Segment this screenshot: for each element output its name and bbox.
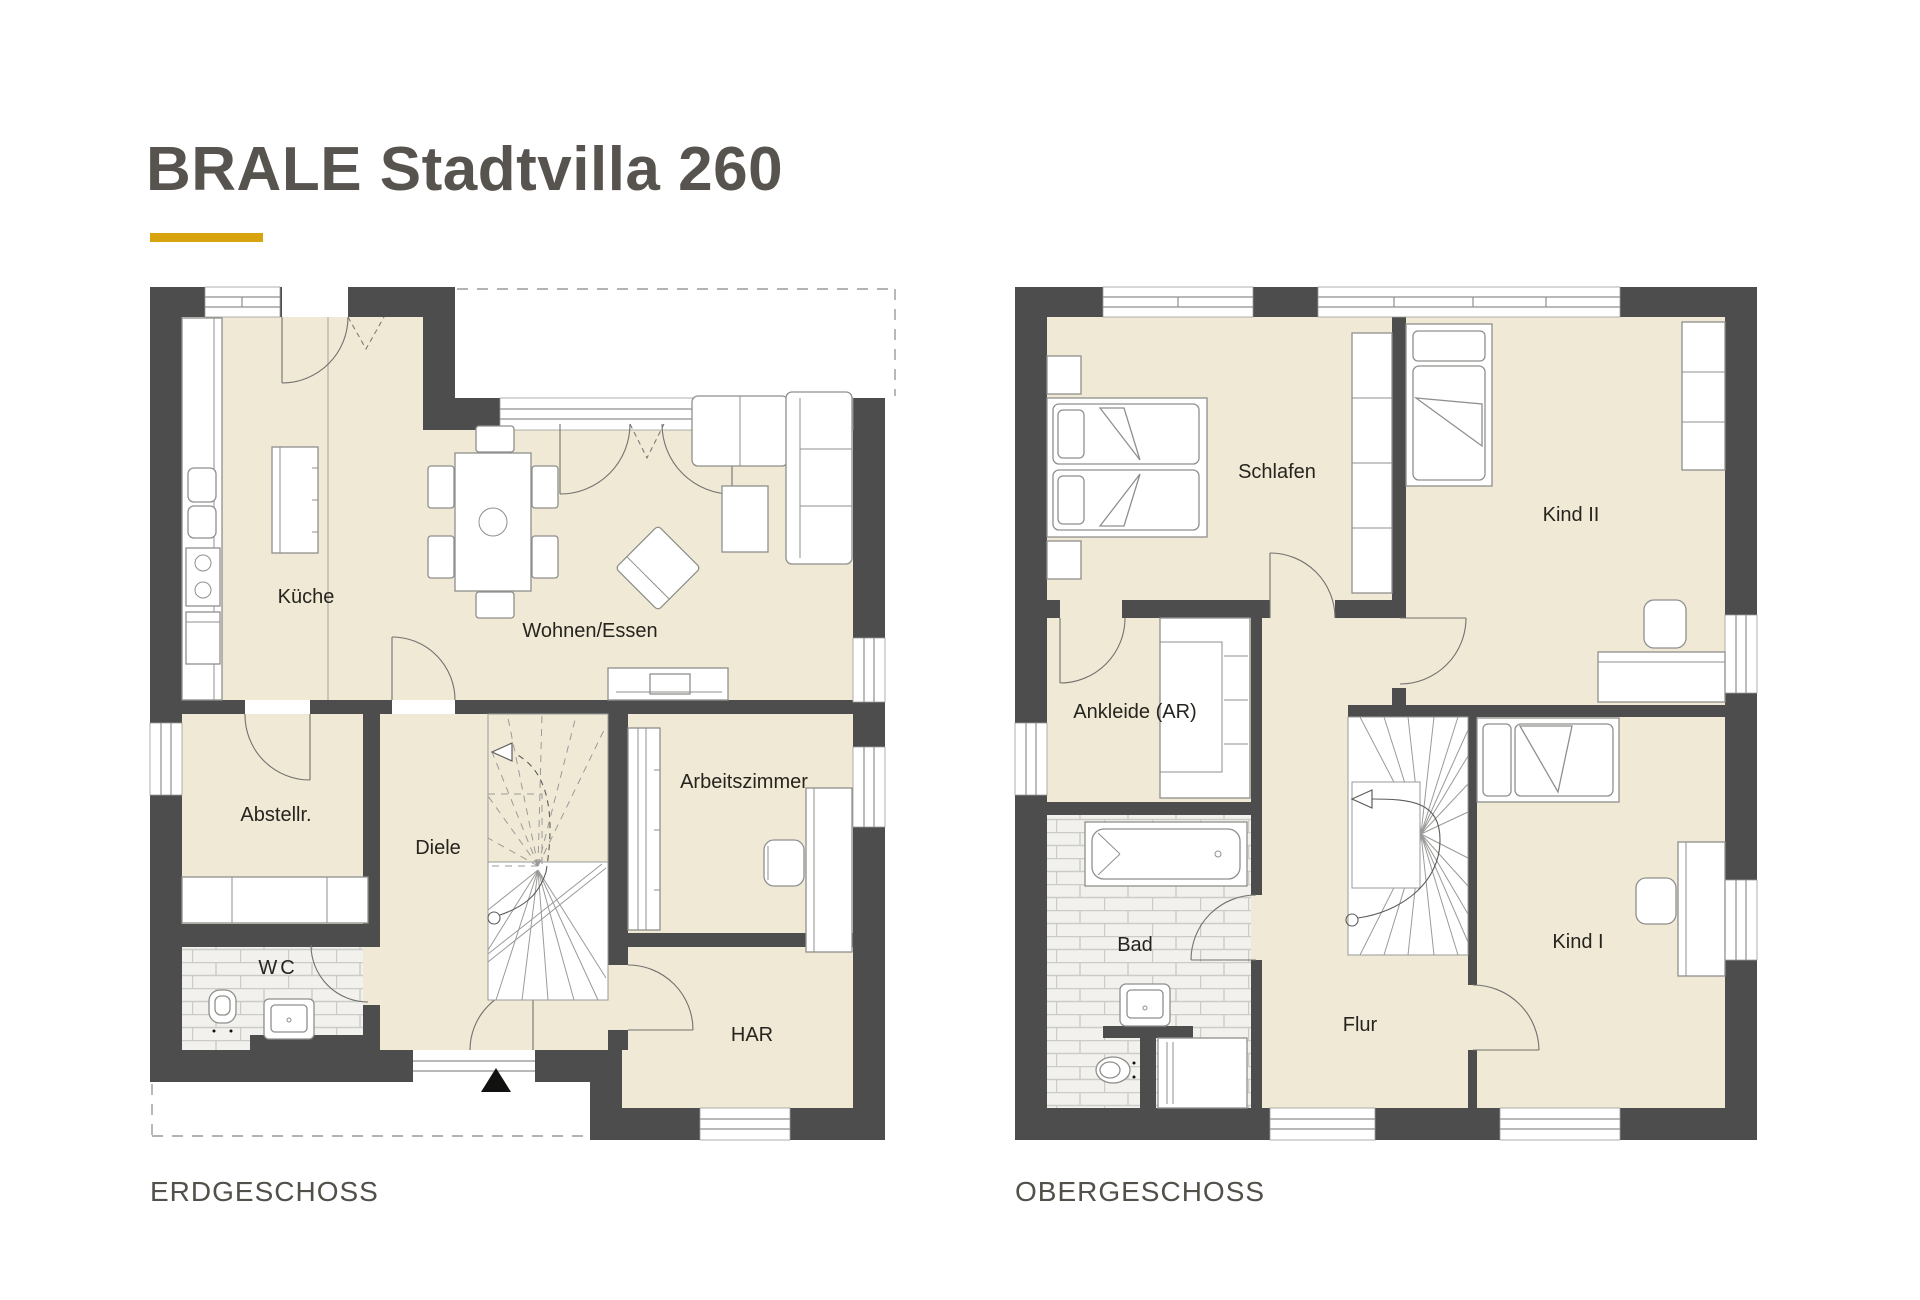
room-label-schlafen: Schlafen — [1238, 461, 1316, 483]
floorplans-canvas: Küche Wohnen/Essen Abstellr. Diele WC Ar… — [0, 0, 1920, 1300]
page: BRALE Stadtvilla 260 — [0, 0, 1920, 1300]
nightstand-2 — [1047, 541, 1081, 579]
porch-outline — [152, 1084, 588, 1136]
wardrobe-kind2 — [1682, 322, 1725, 470]
room-label-wc: WC — [258, 957, 297, 979]
office-chair — [764, 840, 804, 886]
kitchen-island — [272, 447, 318, 553]
coffee-table — [722, 486, 768, 552]
wc-sink — [264, 999, 314, 1039]
desk-kind2 — [1598, 652, 1725, 702]
room-label-abstellraum: Abstellr. — [240, 804, 311, 826]
bath-sink — [1120, 984, 1170, 1026]
room-label-wohnen-essen: Wohnen/Essen — [522, 620, 657, 642]
floorplan-obergeschoss: Schlafen Kind II Ankleide (AR) Bad Flur … — [1015, 287, 1757, 1140]
room-label-kind1: Kind I — [1552, 931, 1603, 953]
chair-kind2 — [1644, 600, 1686, 648]
room-label-kind2: Kind II — [1543, 504, 1600, 526]
room-label-bad: Bad — [1117, 934, 1153, 956]
double-bed — [1047, 398, 1207, 537]
desk-kind1 — [1678, 842, 1725, 976]
room-label-diele: Diele — [415, 837, 461, 859]
room-label-arbeitszimmer: Arbeitszimmer — [680, 771, 808, 793]
floor-label-obergeschoss: OBERGESCHOSS — [1015, 1176, 1265, 1208]
og-stairs — [1346, 717, 1468, 955]
bed-kind2 — [1406, 324, 1492, 486]
bathtub — [1085, 822, 1247, 886]
room-label-har: HAR — [731, 1024, 773, 1046]
office-desk — [806, 788, 852, 952]
wardrobe-schlafen — [1352, 333, 1392, 593]
room-label-flur: Flur — [1343, 1014, 1378, 1036]
storage-cabinets — [182, 877, 368, 923]
room-label-ankleide: Ankleide (AR) — [1073, 701, 1196, 723]
chair-kind1 — [1636, 878, 1676, 924]
kitchen-counter — [182, 318, 222, 700]
roof-overhang-outline — [457, 289, 895, 396]
shower — [1158, 1038, 1247, 1108]
floorplan-erdgeschoss: Küche Wohnen/Essen Abstellr. Diele WC Ar… — [150, 287, 895, 1140]
room-label-kueche: Küche — [278, 586, 335, 608]
sideboard-tv — [608, 668, 728, 700]
office-bookshelf — [628, 728, 660, 930]
floor-label-erdgeschoss: ERDGESCHOSS — [150, 1176, 379, 1208]
bed-kind1 — [1477, 718, 1619, 802]
nightstand-1 — [1047, 356, 1081, 394]
